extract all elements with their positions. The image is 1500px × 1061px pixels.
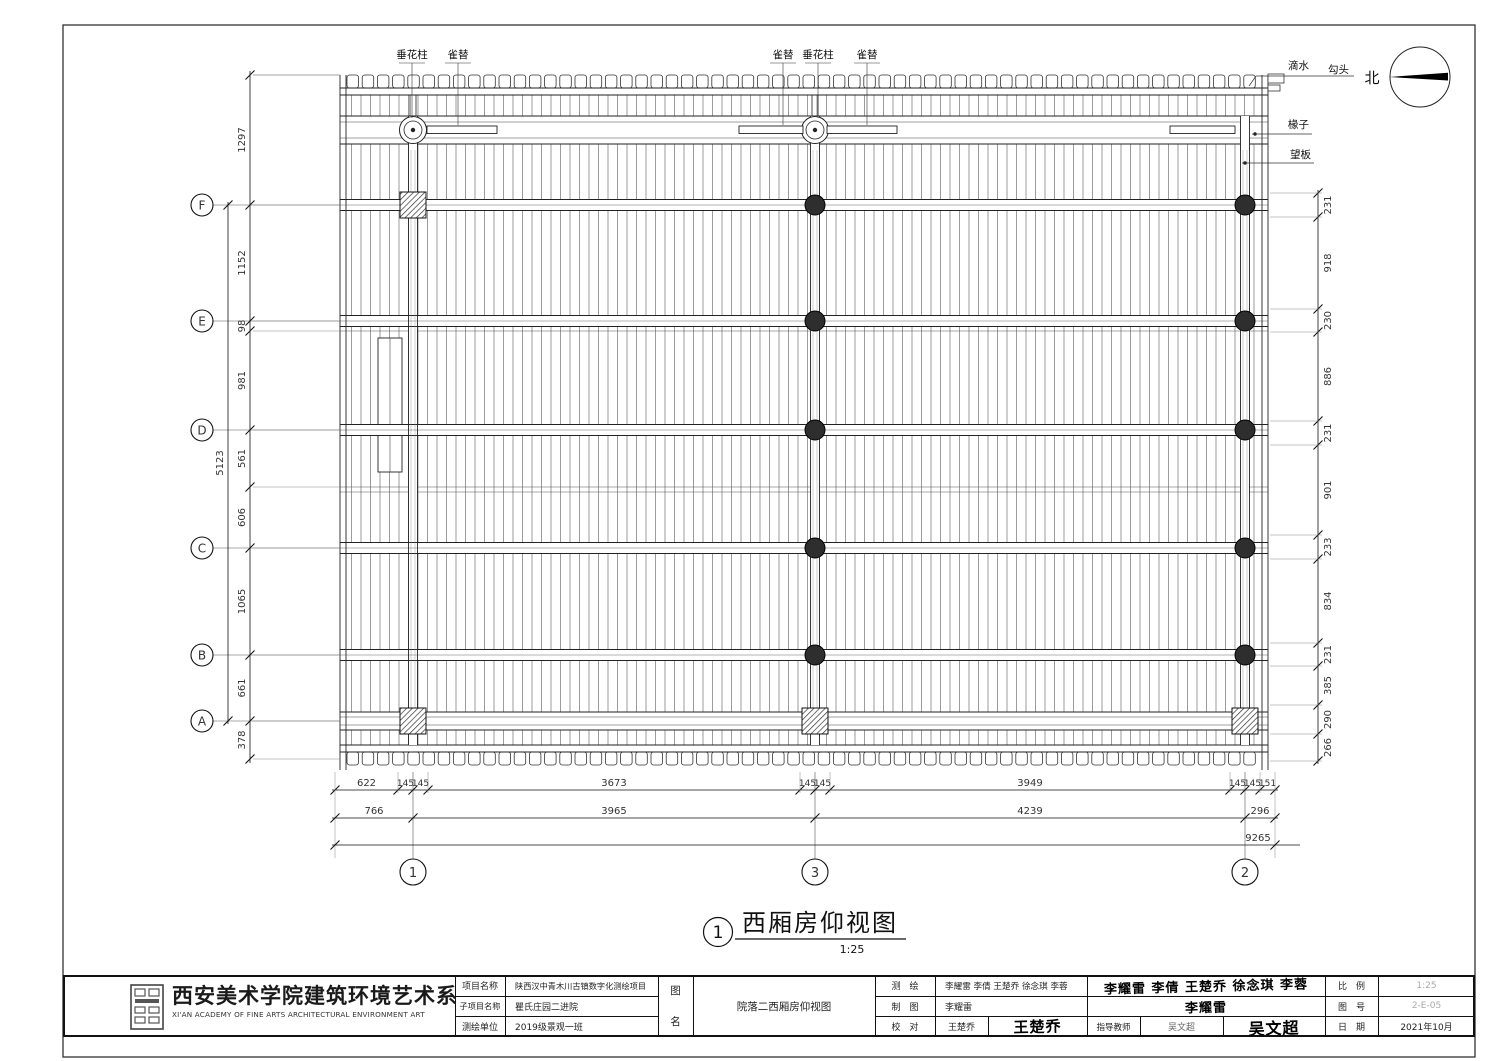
- dim-label: 1152: [237, 250, 248, 275]
- drawing-title-group: 1 西厢房仰视图 1:25: [704, 909, 907, 956]
- check-name: 王楚乔: [935, 1016, 988, 1037]
- dim-label: 385: [1323, 676, 1334, 695]
- check-signature: 王楚乔: [988, 1015, 1088, 1039]
- org-name-cn: 西安美术学院建筑环境艺术系: [172, 979, 452, 1011]
- project-value: 陕西汉中青木川古镇数字化测绘项目: [505, 975, 658, 996]
- subproject-value: 瞿氏庄园二进院: [505, 996, 658, 1016]
- check-label: 校 对: [875, 1016, 935, 1037]
- date-value: 2021年10月: [1378, 1016, 1475, 1037]
- dim-label: 231: [1323, 645, 1334, 664]
- dim-label: 230: [1323, 311, 1334, 330]
- figno-label: 图 号: [1325, 996, 1378, 1016]
- academy-logo-icon: [130, 984, 164, 1030]
- dim-label: 98: [237, 320, 248, 333]
- north-label: 北: [1364, 69, 1379, 87]
- fig-label-bottom: 名: [670, 1014, 681, 1029]
- dim-label: 231: [1323, 195, 1334, 214]
- drawing-geometry: FEDCBA1321297115298981561606106566137851…: [191, 71, 1334, 886]
- dim-label: 3949: [1017, 778, 1042, 789]
- dim-label: 834: [1323, 591, 1334, 610]
- drawing-title: 西厢房仰视图: [742, 909, 898, 937]
- label-chuihuazhu-2: 垂花柱: [802, 48, 834, 61]
- fig-name: 院落二西厢房仰视图: [693, 975, 875, 1037]
- dim-label: 561: [237, 449, 248, 468]
- dim-label: 886: [1323, 367, 1334, 386]
- drawing-scale: 1:25: [840, 943, 865, 956]
- leader-dot: [1253, 132, 1256, 135]
- advisor-signature: 吴文超: [1223, 1015, 1326, 1039]
- label-dishui: 滴水: [1288, 59, 1310, 72]
- dim-label: 233: [1323, 537, 1334, 556]
- label-goutou: 勾头: [1328, 63, 1349, 76]
- project-label: 项目名称: [455, 975, 505, 996]
- dim-label: 5123: [215, 450, 226, 475]
- unit-value: 2019级景观一班: [505, 1016, 658, 1037]
- dim-label: 901: [1323, 480, 1334, 499]
- unit-label: 测绘单位: [455, 1016, 505, 1037]
- draft-name: 李耀雷: [935, 996, 1087, 1016]
- grid-col-bubble-label: 3: [811, 866, 819, 881]
- label-queti-2: 雀替: [773, 48, 794, 61]
- survey-names: 李耀雷 李倩 王楚乔 徐念琪 李蓉: [935, 975, 1087, 996]
- dim-label: 1297: [237, 127, 248, 152]
- label-chuihuazhu-1: 垂花柱: [396, 48, 428, 61]
- dim-label: 3673: [601, 778, 626, 789]
- dim-label: 981: [237, 371, 248, 390]
- scale-label: 比 例: [1325, 975, 1378, 996]
- survey-label: 测 绘: [875, 975, 935, 996]
- scale-value: 1:25: [1378, 975, 1475, 996]
- dim-label: 378: [237, 730, 248, 749]
- dim-label: 296: [1250, 806, 1269, 817]
- title-bubble-number: 1: [713, 923, 724, 943]
- org-name-en: XI'AN ACADEMY OF FINE ARTS ARCHITECTURAL…: [172, 1008, 462, 1021]
- dim-label: 151: [1259, 779, 1276, 789]
- dim-label: 1065: [237, 589, 248, 614]
- label-wangban: 望板: [1290, 148, 1312, 161]
- dim-label: 622: [357, 778, 376, 789]
- draft-label: 制 图: [875, 996, 935, 1016]
- grid-row-bubble-label: B: [198, 649, 206, 663]
- dim-label: 9265: [1245, 833, 1270, 844]
- grid-row-bubble-label: F: [199, 199, 206, 213]
- fig-label: 图 名: [658, 975, 693, 1037]
- label-queti-1: 雀替: [448, 48, 469, 61]
- grid-row-bubble-label: C: [198, 542, 206, 556]
- advisor-name: 吴文超: [1140, 1016, 1223, 1037]
- grid-col-bubble-label: 2: [1241, 866, 1249, 881]
- dim-label: 606: [237, 508, 248, 527]
- drawing-sheet: FEDCBA1321297115298981561606106566137851…: [0, 0, 1500, 1061]
- west-wing-bottom-view-drawing: FEDCBA1321297115298981561606106566137851…: [0, 0, 1500, 1061]
- grid-col-bubble-label: 1: [409, 866, 417, 881]
- fig-label-top: 图: [670, 983, 681, 998]
- date-label: 日 期: [1325, 1016, 1378, 1037]
- dim-label: 290: [1323, 710, 1334, 729]
- dim-label: 766: [364, 806, 383, 817]
- north-compass-icon: 北: [1364, 47, 1450, 107]
- dim-label: 918: [1323, 253, 1334, 272]
- sheet-border: [63, 25, 1475, 1057]
- advisor-label: 指导教师: [1087, 1016, 1140, 1037]
- leader-dot: [1243, 161, 1246, 164]
- dim-label: 145: [412, 779, 429, 789]
- label-queti-3: 雀替: [857, 48, 878, 61]
- grid-row-bubble-label: E: [198, 315, 206, 329]
- figno-value: 2-E-05: [1378, 996, 1475, 1016]
- dim-label: 231: [1323, 423, 1334, 442]
- grid-row-bubble-label: A: [198, 715, 207, 729]
- subproject-label: 子项目名称: [455, 996, 505, 1016]
- dim-label: 3965: [601, 806, 626, 817]
- label-chuanzi: 椽子: [1288, 118, 1309, 131]
- dim-label: 145: [814, 779, 831, 789]
- dim-label: 4239: [1017, 806, 1042, 817]
- dim-label: 661: [237, 678, 248, 697]
- dim-label: 266: [1323, 738, 1334, 757]
- grid-row-bubble-label: D: [197, 424, 206, 438]
